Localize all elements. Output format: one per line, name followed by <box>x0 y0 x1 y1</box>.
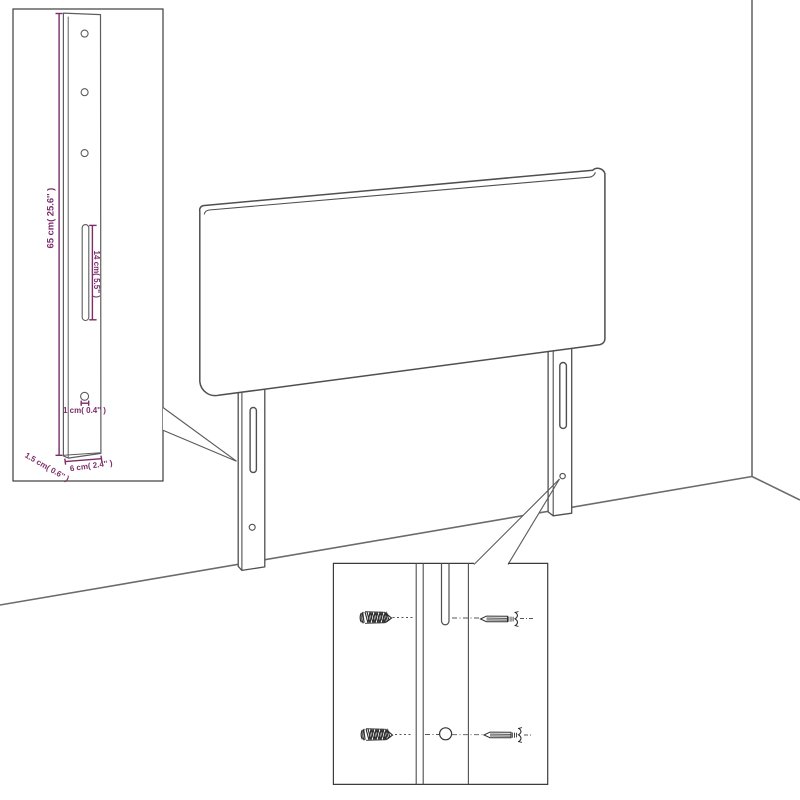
svg-text:65 cm( 25.6'' ): 65 cm( 25.6'' ) <box>45 188 56 249</box>
svg-text:1 cm( 0.4'' ): 1 cm( 0.4'' ) <box>63 406 106 415</box>
svg-text:14 cm( 5.5'' ): 14 cm( 5.5'' ) <box>92 251 101 299</box>
